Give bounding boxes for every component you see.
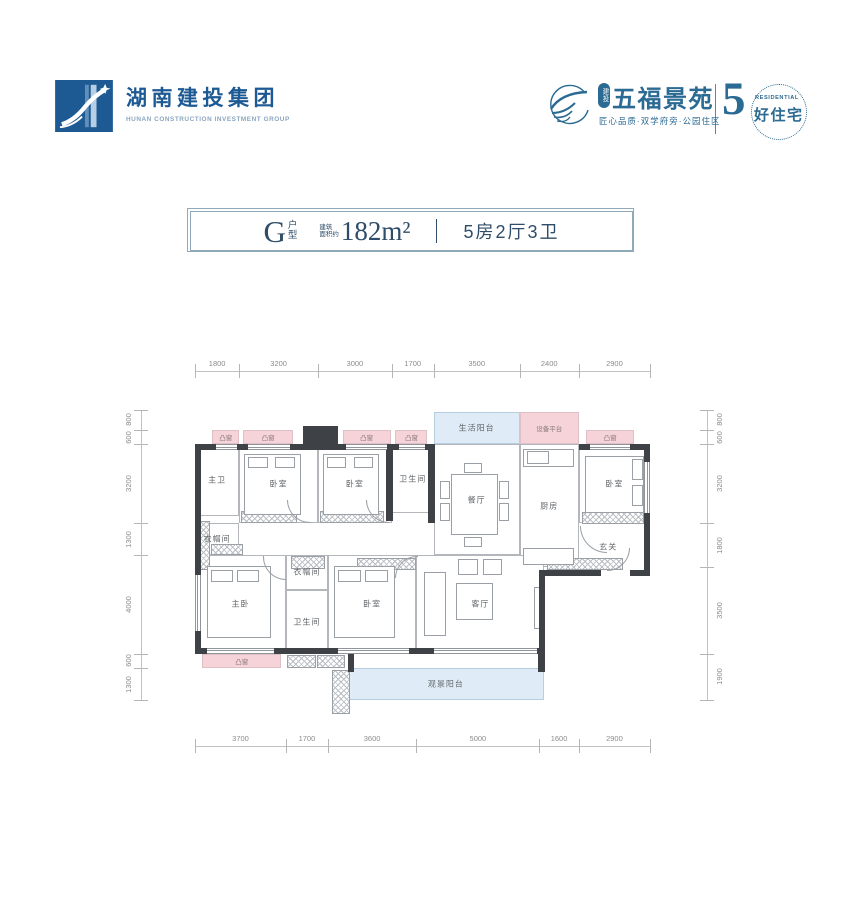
room-label-bath2: 卫生间 xyxy=(399,473,426,484)
cabinet-hatch xyxy=(332,670,350,714)
dimension-label: 800 xyxy=(715,414,724,427)
furniture-outline xyxy=(499,481,509,498)
dimension-label-wrap: 600 xyxy=(121,654,136,669)
dimension-label: 5000 xyxy=(416,734,539,743)
furniture-outline xyxy=(632,459,643,480)
dimension-tick xyxy=(134,700,148,701)
dimension-label: 3500 xyxy=(434,359,520,368)
furniture-outline xyxy=(440,503,450,520)
wall-segment xyxy=(544,570,601,576)
dimension-label-wrap: 600 xyxy=(712,430,727,445)
dimension-label: 2900 xyxy=(579,359,650,368)
room-label-bath3: 卫生间 xyxy=(293,616,320,627)
dimension-label-wrap: 1300 xyxy=(121,668,136,700)
cabinet-hatch xyxy=(317,655,345,669)
room-label-bay6: 凸窗 xyxy=(235,656,248,666)
dimension-label-wrap: 1900 xyxy=(712,654,727,701)
dimension-label-wrap: 600 xyxy=(121,430,136,445)
dimension-label: 3200 xyxy=(239,359,318,368)
dimension-label-wrap: 800 xyxy=(121,410,136,430)
room-label-cloak2: 衣帽间 xyxy=(293,567,320,578)
dimension-label: 3700 xyxy=(195,734,286,743)
room-label-view_balcony: 观景阳台 xyxy=(428,679,464,690)
dimension-tick xyxy=(700,700,714,701)
dimension-label-wrap: 3200 xyxy=(121,444,136,523)
wall-segment xyxy=(630,570,650,576)
cabinet-hatch xyxy=(287,655,315,669)
room-label-bay3: 凸窗 xyxy=(360,432,373,442)
dimension-line xyxy=(195,746,650,747)
dimension-label-wrap: 4000 xyxy=(121,555,136,653)
window xyxy=(346,444,387,450)
dimension-tick xyxy=(134,410,148,411)
room-label-foyer: 玄关 xyxy=(599,541,617,552)
wall-segment xyxy=(428,444,435,523)
dimension-label: 600 xyxy=(715,431,724,444)
furniture-outline xyxy=(464,537,481,547)
dimension-label-wrap: 3200 xyxy=(712,444,727,523)
dimension-label: 2400 xyxy=(520,359,579,368)
room-label-bedroom1: 卧室 xyxy=(270,478,288,489)
window xyxy=(195,575,201,632)
dimension-label: 1900 xyxy=(715,669,724,686)
cabinet-hatch xyxy=(582,512,644,524)
dimension-tick xyxy=(134,430,148,431)
dimension-label-wrap: 800 xyxy=(712,410,727,430)
wall-segment xyxy=(386,444,393,520)
dimension-tick xyxy=(134,654,148,655)
furniture-outline xyxy=(458,559,478,575)
dimension-tick xyxy=(134,555,148,556)
dimension-label-wrap: 1800 xyxy=(712,523,727,567)
dimension-label: 3500 xyxy=(715,602,724,619)
dimension-label: 1700 xyxy=(286,734,328,743)
room-label-life_balcony: 生活阳台 xyxy=(459,423,495,434)
furniture-outline xyxy=(499,503,509,520)
room-label-bay5: 凸窗 xyxy=(604,432,617,442)
furniture-outline xyxy=(424,572,446,636)
room-label-master_bed: 主卧 xyxy=(232,599,250,610)
room-label-bedroom3: 卧室 xyxy=(605,478,623,489)
wall-segment xyxy=(303,426,337,449)
dimension-label: 1300 xyxy=(124,531,133,548)
window xyxy=(248,444,290,450)
room-label-cloak1: 衣帽间 xyxy=(204,534,231,545)
room-label-bedroom4: 卧室 xyxy=(363,599,381,610)
window xyxy=(434,648,537,654)
furniture-outline xyxy=(464,463,481,473)
dimension-label: 1700 xyxy=(392,359,434,368)
room-label-bay1: 凸窗 xyxy=(219,432,232,442)
room-label-master_bath: 主卫 xyxy=(208,475,226,486)
dimension-tick xyxy=(134,444,148,445)
dimension-label: 3200 xyxy=(715,475,724,492)
furniture-outline xyxy=(632,485,643,506)
dimension-label: 1300 xyxy=(124,676,133,693)
furniture-outline xyxy=(523,548,573,565)
furniture-outline xyxy=(327,457,347,468)
dimension-label: 800 xyxy=(124,414,133,427)
dimension-label: 600 xyxy=(124,655,133,668)
furniture-outline xyxy=(440,481,450,498)
dimension-label: 1600 xyxy=(539,734,578,743)
room-label-kitchen: 厨房 xyxy=(540,500,558,511)
dimension-label: 3000 xyxy=(318,359,392,368)
dimension-tick xyxy=(650,364,651,378)
dimension-label-wrap: 1300 xyxy=(121,523,136,555)
dimension-label-wrap: 3500 xyxy=(712,567,727,653)
wall-segment xyxy=(539,570,545,654)
window xyxy=(338,648,409,654)
dimension-tick xyxy=(650,739,651,753)
room-label-dining: 餐厅 xyxy=(468,494,486,505)
room-label-bay4: 凸窗 xyxy=(405,432,418,442)
furniture-outline xyxy=(248,457,268,468)
window xyxy=(216,444,237,450)
furniture-outline xyxy=(527,451,549,463)
room-label-living: 客厅 xyxy=(471,599,489,610)
room-label-bedroom2: 卧室 xyxy=(346,478,364,489)
window xyxy=(399,444,425,450)
dimension-line xyxy=(195,371,650,372)
room-label-equip_platform: 设备平台 xyxy=(536,423,562,433)
dimension-label: 3600 xyxy=(328,734,417,743)
wall-segment xyxy=(538,648,545,673)
dimension-tick xyxy=(134,668,148,669)
furniture-outline xyxy=(338,570,361,582)
room-label-bay2: 凸窗 xyxy=(262,432,275,442)
furniture-outline xyxy=(354,457,374,468)
dimension-label: 1800 xyxy=(715,537,724,554)
window xyxy=(644,462,650,514)
dimension-label: 600 xyxy=(124,431,133,444)
dimension-line xyxy=(707,410,708,700)
window xyxy=(207,648,273,654)
dimension-label: 2900 xyxy=(579,734,650,743)
window xyxy=(590,444,631,450)
dimension-label: 1800 xyxy=(195,359,239,368)
furniture-outline xyxy=(483,559,503,575)
dimension-tick xyxy=(134,523,148,524)
floor-plan: 凸窗凸窗凸窗凸窗凸窗凸窗生活阳台设备平台主卫卧室卧室卫生间餐厅厨房卧室衣帽间玄关… xyxy=(0,0,850,901)
dimension-label: 3200 xyxy=(124,475,133,492)
furniture-outline xyxy=(211,570,233,582)
floorplan-poster: 湖南建投集团 HUNAN CONSTRUCTION INVESTMENT GRO… xyxy=(0,0,850,901)
dimension-label: 4000 xyxy=(124,596,133,613)
furniture-outline xyxy=(365,570,388,582)
cabinet-hatch xyxy=(211,544,243,555)
furniture-outline xyxy=(275,457,295,468)
furniture-outline xyxy=(237,570,259,582)
